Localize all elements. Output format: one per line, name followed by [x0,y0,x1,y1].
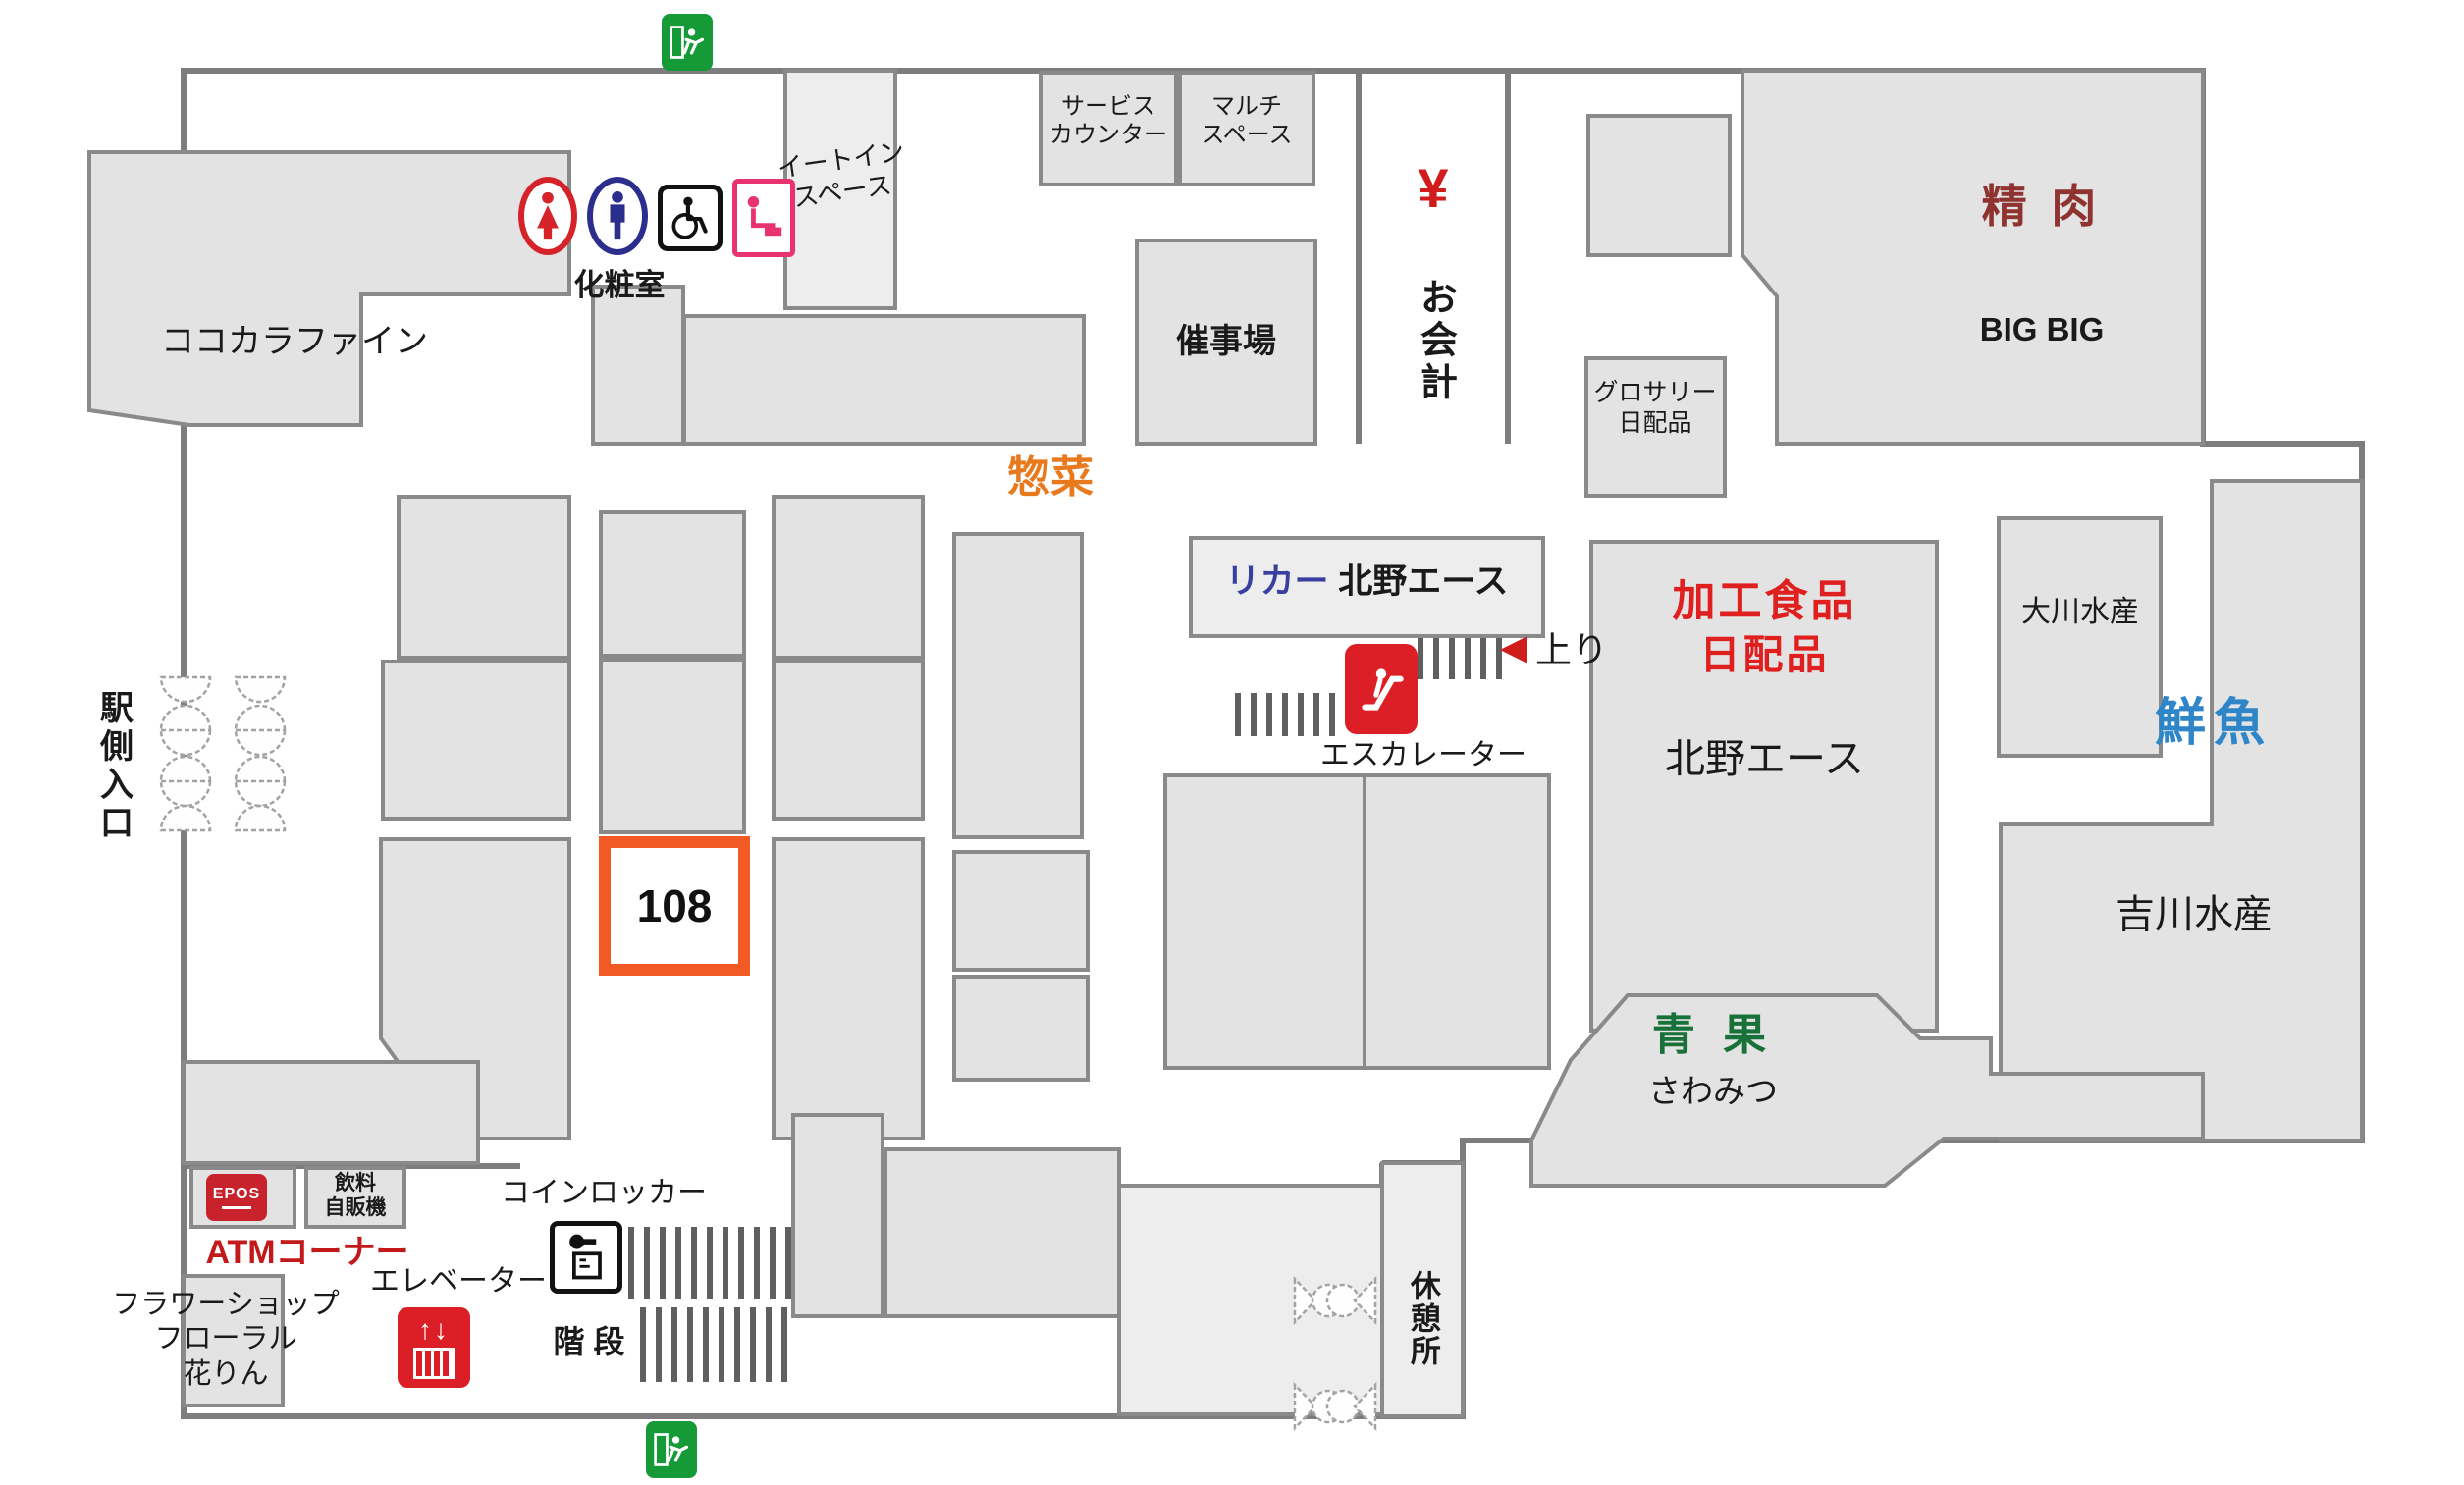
female-restroom-icon [518,177,577,255]
processed-food-label-1: 加工食品 [1610,575,1919,628]
checkout-yen-icon: ¥ [1384,155,1482,222]
highlighted-booth-108[interactable]: 108 [599,836,750,976]
shelf-g2 [954,977,1088,1080]
shelf-c2 [774,662,923,819]
grocery-label: グロサリー日配品 [1580,378,1730,438]
restroom-label: 化粧室 [546,267,693,304]
meat-block [1742,71,2203,444]
rest-door-symbol-lower [1292,1382,1378,1431]
okawa-suisan-label: 大川水産 [2003,595,2158,631]
elevator-icon: ↑↓ [398,1307,470,1388]
epos-atm-icon-text: EPOS [213,1186,260,1203]
bottom-shelf-a [793,1115,883,1316]
restroom-block-small [593,287,683,444]
shelf-g1 [954,852,1088,970]
meat-label: 精 肉 [1914,179,2169,234]
shelf-c1 [774,497,923,658]
event-space-label: 催事場 [1141,322,1312,362]
produce-label: 青 果 [1620,1009,1806,1062]
rest-door-symbol-upper [1292,1276,1378,1325]
coin-locker-icon [550,1221,622,1294]
escalator-up-arrow-icon [1500,636,1527,663]
elevator-label: エレベーター [365,1264,552,1300]
liquor-kitano-label: リカー 北野エース [1198,561,1536,604]
station-door-symbol-left [157,673,214,834]
shelf-a1 [399,497,569,658]
cocokara-label: ココカラファイン [137,322,452,362]
rest-area-label: 休憩所 [1404,1235,1441,1402]
stairs-hatch-lower [640,1307,797,1382]
coin-locker-label: コインロッカー [491,1176,717,1212]
shelf-b2 [601,660,744,832]
bottom-shelf-b [885,1149,1119,1316]
store-floor-map: 108 EPOS ↑↓ ココカラファイン 化粧室 イートインスペース [0,0,2464,1485]
restroom-block-large [684,316,1084,444]
center-block-left [1165,775,1365,1068]
emergency-exit-icon-top [662,14,713,71]
escalator-hatch-upper [1418,638,1502,679]
yoshikawa-suisan-label: 吉川水産 [2062,891,2327,939]
cocokara-block [89,152,569,425]
service-counter-label: サービスカウンター [1043,92,1174,150]
flower-shop-label: フラワーショップ フローラル 花りん [93,1288,358,1392]
liquor-store-label: 北野エース [1338,562,1508,601]
epos-atm-icon: EPOS [206,1174,267,1221]
vending-machine-label: 飲料自販機 [306,1171,404,1220]
shelf-b1 [601,512,744,656]
deli-label: 惣菜 [982,451,1119,504]
multi-space-label: マルチスペース [1182,92,1312,150]
stairs-label: 階 段 [535,1323,643,1361]
escalator-up-label: 上り [1527,628,1616,672]
bottom-left-shelf [184,1062,478,1163]
shelf-d [954,534,1082,837]
liquor-label: リカー [1225,562,1328,601]
shelf-f [774,839,923,1139]
stairs-hatch-upper [628,1227,795,1299]
escalator-icon [1345,644,1418,734]
kitano-ace-label: 北野エース [1610,734,1919,783]
sawamitsu-store-label: さわみつ [1610,1072,1816,1111]
escalator-hatch-lower [1235,693,1345,736]
shelf-a2 [383,662,569,819]
processed-food-label-2: 日配品 [1610,630,1919,679]
emergency-exit-icon-bottom [646,1421,697,1478]
station-door-symbol-right [232,673,289,834]
upper-right-small-block [1588,116,1730,255]
bigbig-store-label: BIG BIG [1914,310,2169,349]
checkout-label: お会計 [1412,247,1457,434]
fresh-fish-label: 鮮魚 [2120,693,2307,755]
male-restroom-icon [587,177,648,255]
wheelchair-accessible-icon [658,185,723,251]
station-entrance-label: 駅側入口 [92,673,133,860]
center-block-right [1365,775,1549,1068]
escalator-label: エスカレーター [1296,738,1551,774]
